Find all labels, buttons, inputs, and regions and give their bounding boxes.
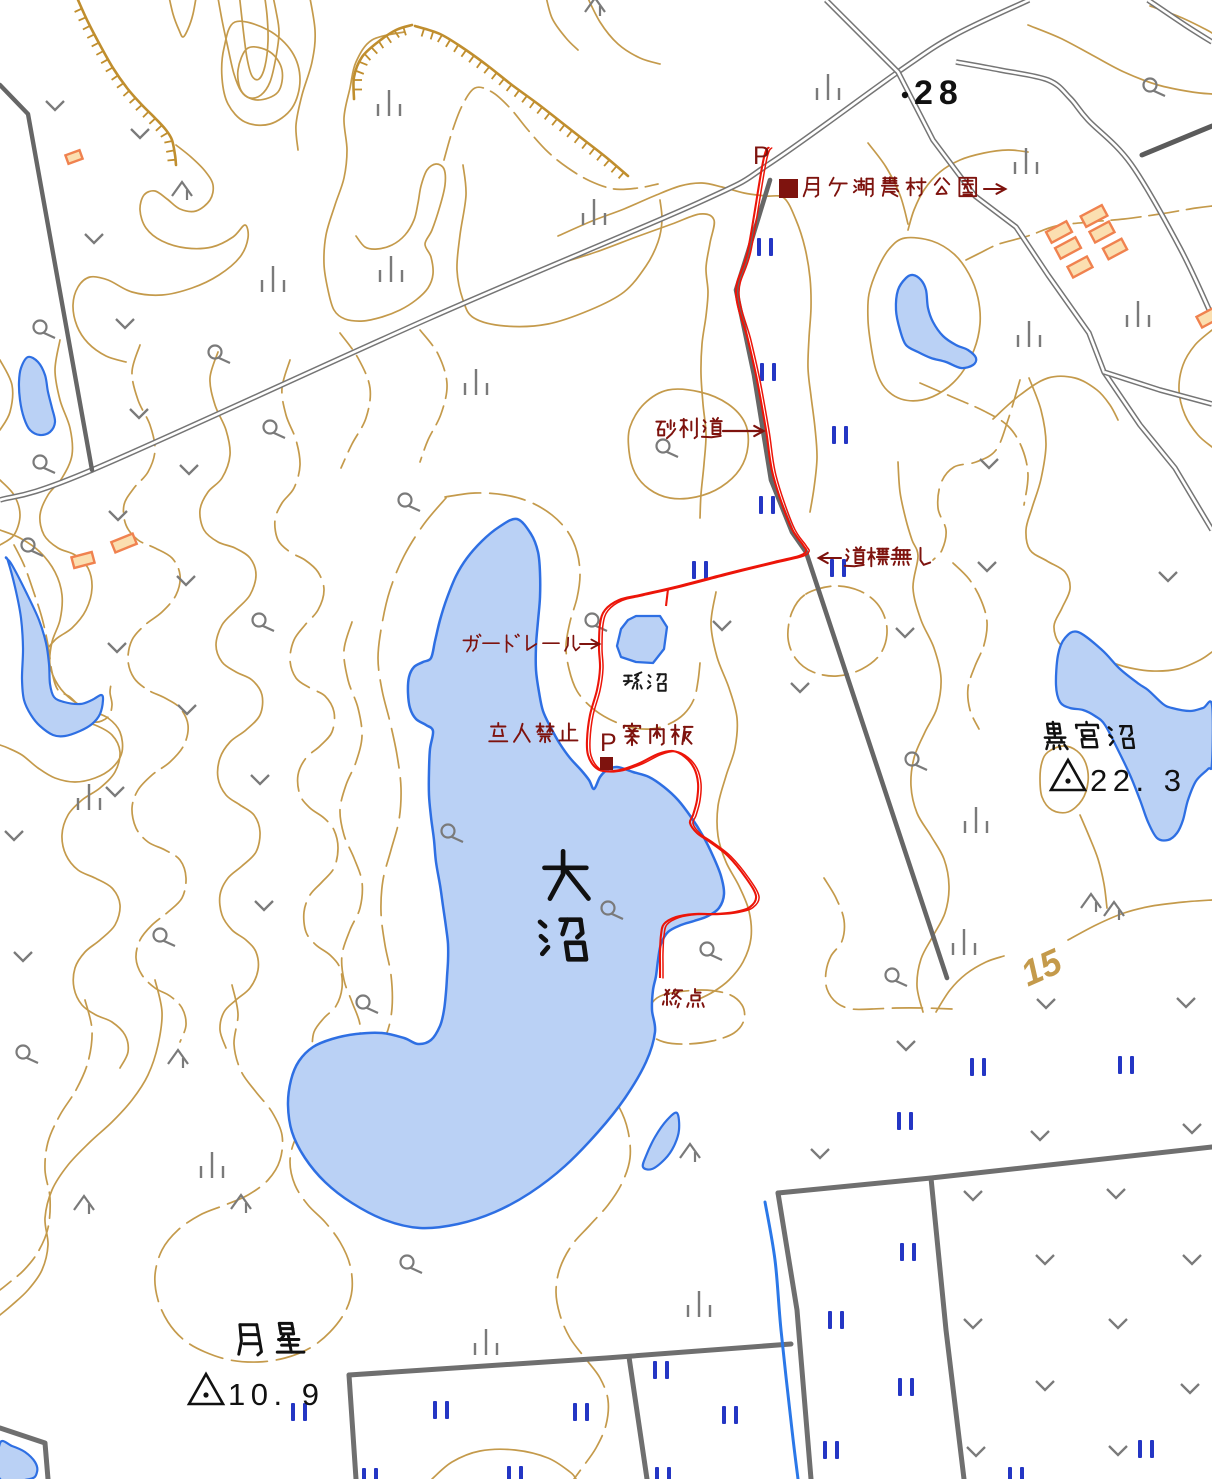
svg-text:22. 3: 22. 3 xyxy=(1090,763,1186,798)
svg-text:P: P xyxy=(600,729,617,757)
svg-text:28: 28 xyxy=(914,74,964,112)
svg-text:10. 9: 10. 9 xyxy=(228,1377,324,1412)
svg-text:P: P xyxy=(753,142,770,170)
